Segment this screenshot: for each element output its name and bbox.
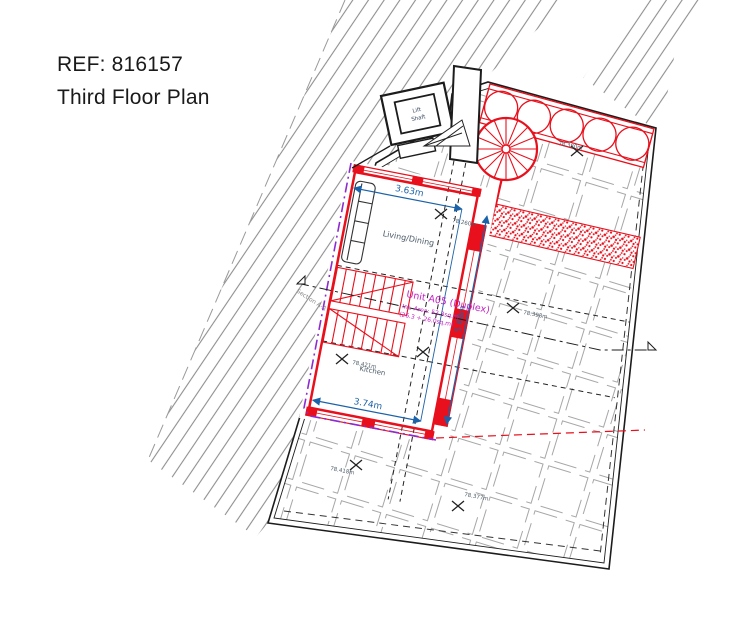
spiral-stair <box>475 118 537 180</box>
stair-core <box>450 66 481 163</box>
hatch-region-top-right <box>583 0 706 126</box>
drawing-header: REF: 816157 Third Floor Plan <box>57 48 210 114</box>
reference-number: REF: 816157 <box>57 48 210 81</box>
floor-plan-page: 3.63m 3.74m 5.68m Lift Shaft Sect <box>0 0 729 632</box>
page-title: Third Floor Plan <box>57 81 210 114</box>
